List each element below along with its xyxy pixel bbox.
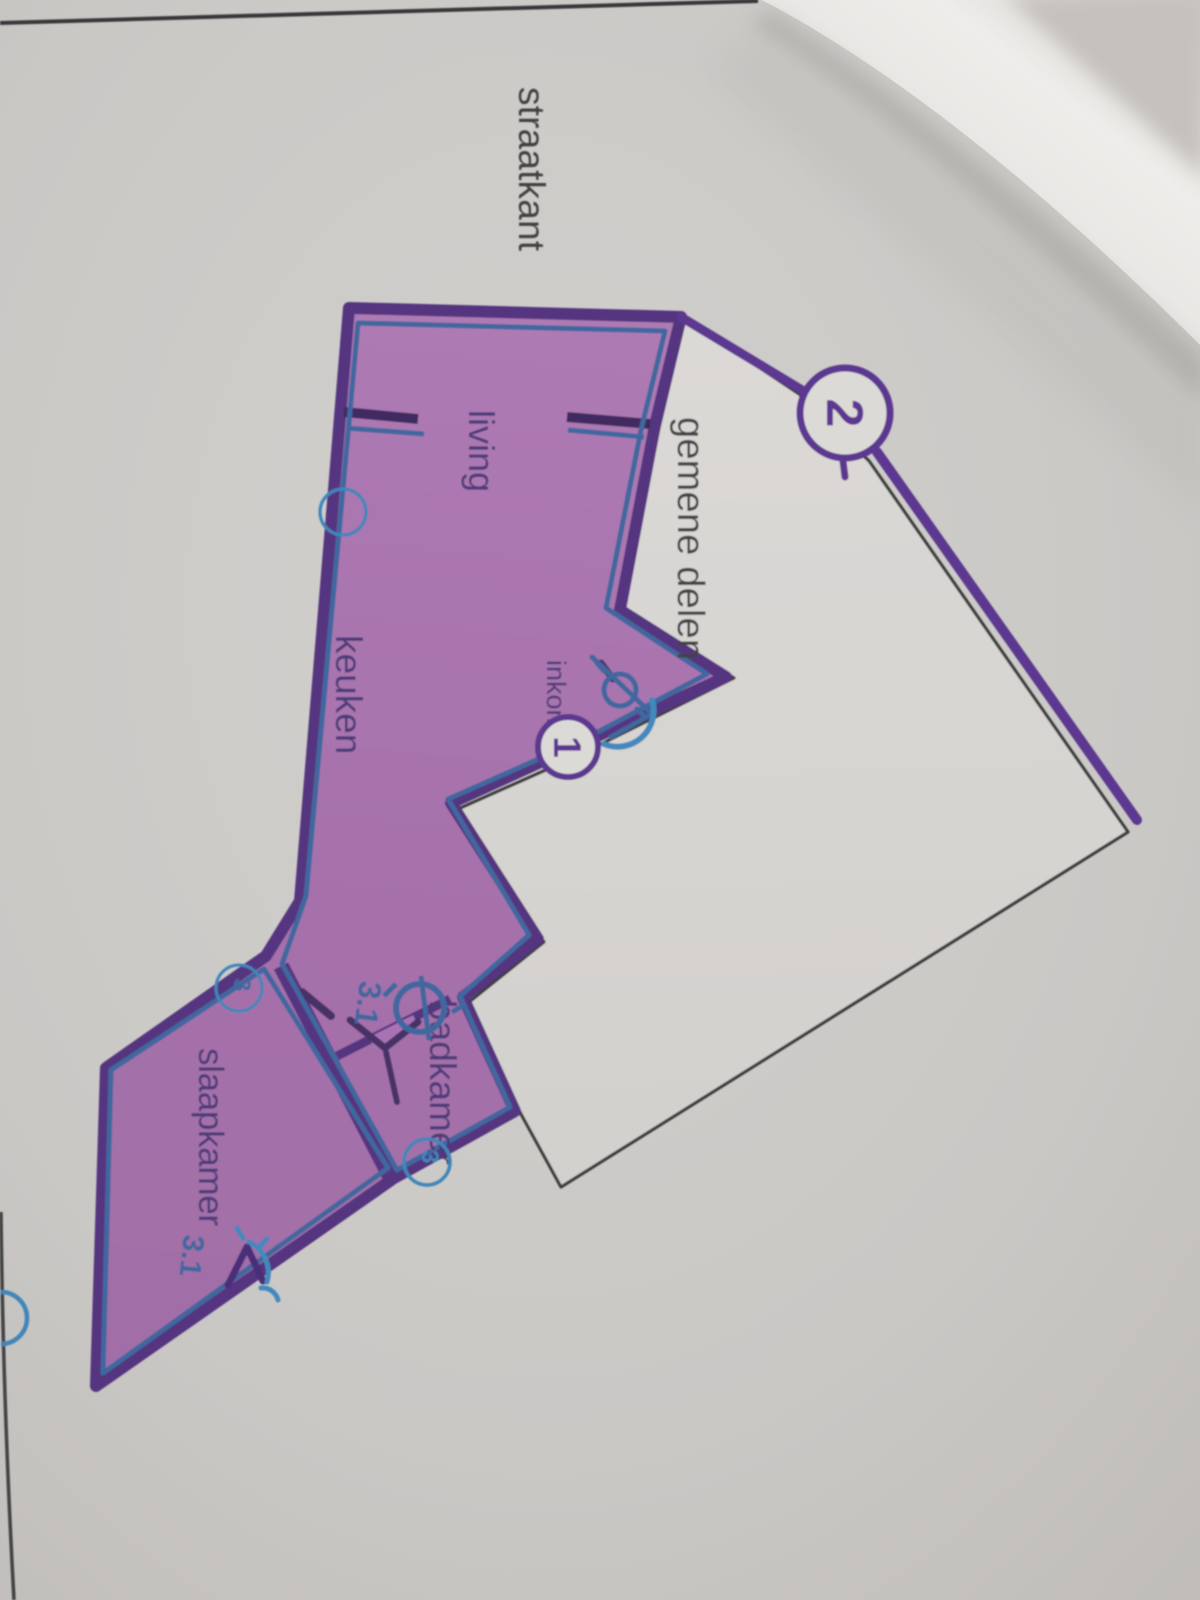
svg-text:slaapkamer: slaapkamer [191,1048,230,1226]
svg-text:3: 3 [228,978,255,991]
svg-text:2: 2 [815,399,873,428]
svg-text:keuken: keuken [328,635,369,754]
svg-text:1: 1 [545,736,588,758]
svg-text:3.1: 3.1 [348,979,389,1028]
svg-text:straatkant: straatkant [511,87,552,252]
svg-text:living: living [461,410,502,492]
svg-text:3.1: 3.1 [173,1233,210,1278]
svg-text:3: 3 [416,1150,443,1163]
svg-text:gemene delen: gemene delen [669,417,711,660]
